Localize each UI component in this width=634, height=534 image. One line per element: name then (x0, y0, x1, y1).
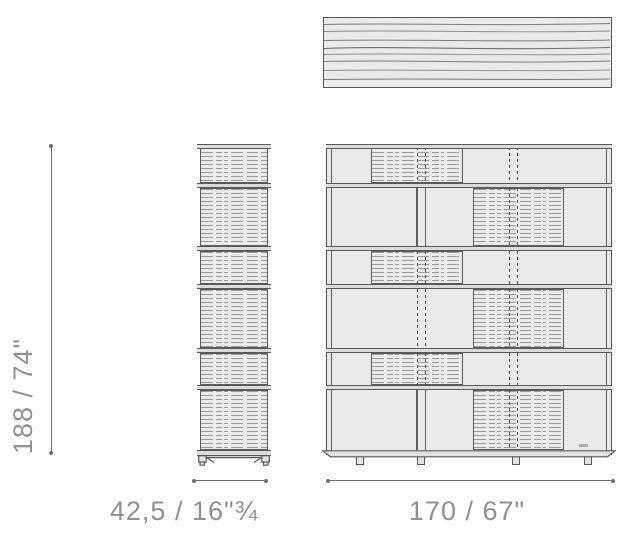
shelf-band (197, 348, 271, 353)
door-seam (425, 390, 427, 450)
front-view-cabinet (326, 144, 612, 466)
row-3 (332, 251, 606, 284)
door-seam (416, 188, 418, 246)
door-track-dashed (509, 353, 510, 385)
shelf-band (326, 183, 612, 188)
compartment (200, 390, 268, 450)
top-band (197, 144, 271, 149)
sliding-door-textured (473, 390, 564, 450)
width-dimension-end-right (611, 479, 615, 483)
side-view-cabinet (197, 144, 271, 466)
height-dimension-end-top (49, 144, 53, 148)
compartment (200, 289, 268, 348)
caster-feet (197, 455, 271, 466)
door-seam (425, 188, 427, 246)
door-track-dashed (517, 251, 518, 284)
compartment (200, 251, 268, 284)
height-dimension-line (51, 145, 52, 452)
base-plinth (322, 450, 616, 458)
side-frame-right (606, 144, 612, 455)
depth-dimension-end-left (192, 479, 196, 483)
door-seam (416, 390, 418, 450)
shelf-band (326, 348, 612, 353)
row-4 (332, 289, 606, 348)
door-track-dashed (517, 289, 518, 348)
shelf-band (326, 246, 612, 251)
door-track-dashed (425, 289, 426, 348)
shelf-band (197, 246, 271, 251)
compartment (200, 353, 268, 385)
door-track-dashed (417, 147, 418, 183)
door-track-dashed (509, 251, 510, 284)
door-track-dashed (417, 289, 418, 348)
door-track-dashed (509, 188, 510, 246)
row-6 (332, 390, 606, 450)
door-track-dashed (517, 390, 518, 450)
compartment (200, 188, 268, 246)
door-track-dashed (509, 390, 510, 450)
sliding-door-textured (473, 289, 564, 348)
row-2 (332, 188, 606, 246)
door-track-dashed (517, 147, 518, 183)
door-track-dashed (517, 353, 518, 385)
height-dimension-end-bottom (49, 451, 53, 455)
row-5 (332, 353, 606, 385)
width-dimension-line (327, 480, 613, 481)
door-track-dashed (417, 353, 418, 385)
width-dimension-end-left (326, 479, 330, 483)
shelf-band (326, 385, 612, 390)
door-track-dashed (517, 188, 518, 246)
sliding-door-textured (473, 188, 564, 246)
height-dimension-label: 188 / 74" (9, 326, 37, 466)
shelf-band (197, 284, 271, 289)
door-track-dashed (509, 147, 510, 183)
top-band (326, 144, 612, 149)
brand-mark (579, 444, 588, 447)
width-dimension-label: 170 / 67" (409, 497, 525, 525)
door-track-dashed (425, 147, 426, 183)
technical-drawing-canvas: 188 / 74" (0, 0, 634, 534)
shelf-band (326, 284, 612, 289)
shelf-band (197, 183, 271, 188)
door-track-dashed (509, 289, 510, 348)
depth-dimension-end-right (264, 479, 268, 483)
wood-grain-lines (324, 18, 610, 86)
depth-dimension-label: 42,5 / 16"¾ (110, 497, 258, 525)
top-view-panel (323, 17, 612, 88)
shelf-band (197, 385, 271, 390)
door-track-dashed (425, 353, 426, 385)
door-track-dashed (417, 251, 418, 284)
row-1 (332, 147, 606, 183)
door-track-dashed (425, 251, 426, 284)
depth-dimension-line (193, 480, 266, 481)
compartment (200, 147, 268, 183)
